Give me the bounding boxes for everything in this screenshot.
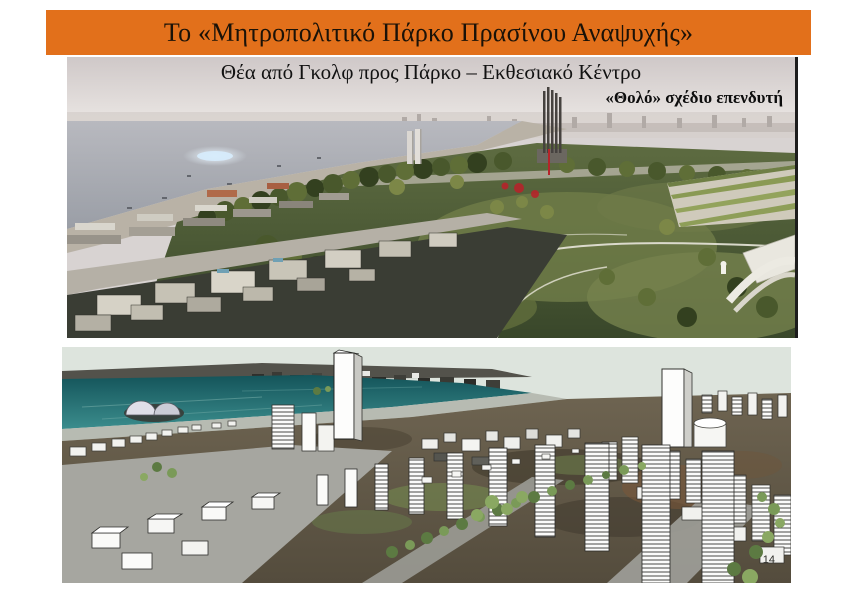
page-number: 14 — [763, 554, 775, 566]
slide-title: Το «Μητροπολιτικό Πάρκο Πρασίνου Αναψυχή… — [164, 18, 693, 48]
massing-model-render: 14 — [62, 347, 791, 583]
image-subtitle: Θέα από Γκολφ προς Πάρκο – Εκθεσιακό Κέν… — [67, 60, 795, 85]
stadium-glow — [183, 146, 247, 166]
presentation-slide: Το «Μητροπολιτικό Πάρκο Πρασίνου Αναψυχή… — [0, 0, 858, 595]
aerial-photo-render: Θέα από Γκολφ προς Πάρκο – Εκθεσιακό Κέν… — [67, 57, 798, 338]
title-banner: Το «Μητροπολιτικό Πάρκο Πρασίνου Αναψυχή… — [46, 10, 811, 55]
investor-plan-label: «Θολό» σχέδιο επενδυτή — [605, 88, 783, 108]
model-render-art — [62, 347, 791, 583]
